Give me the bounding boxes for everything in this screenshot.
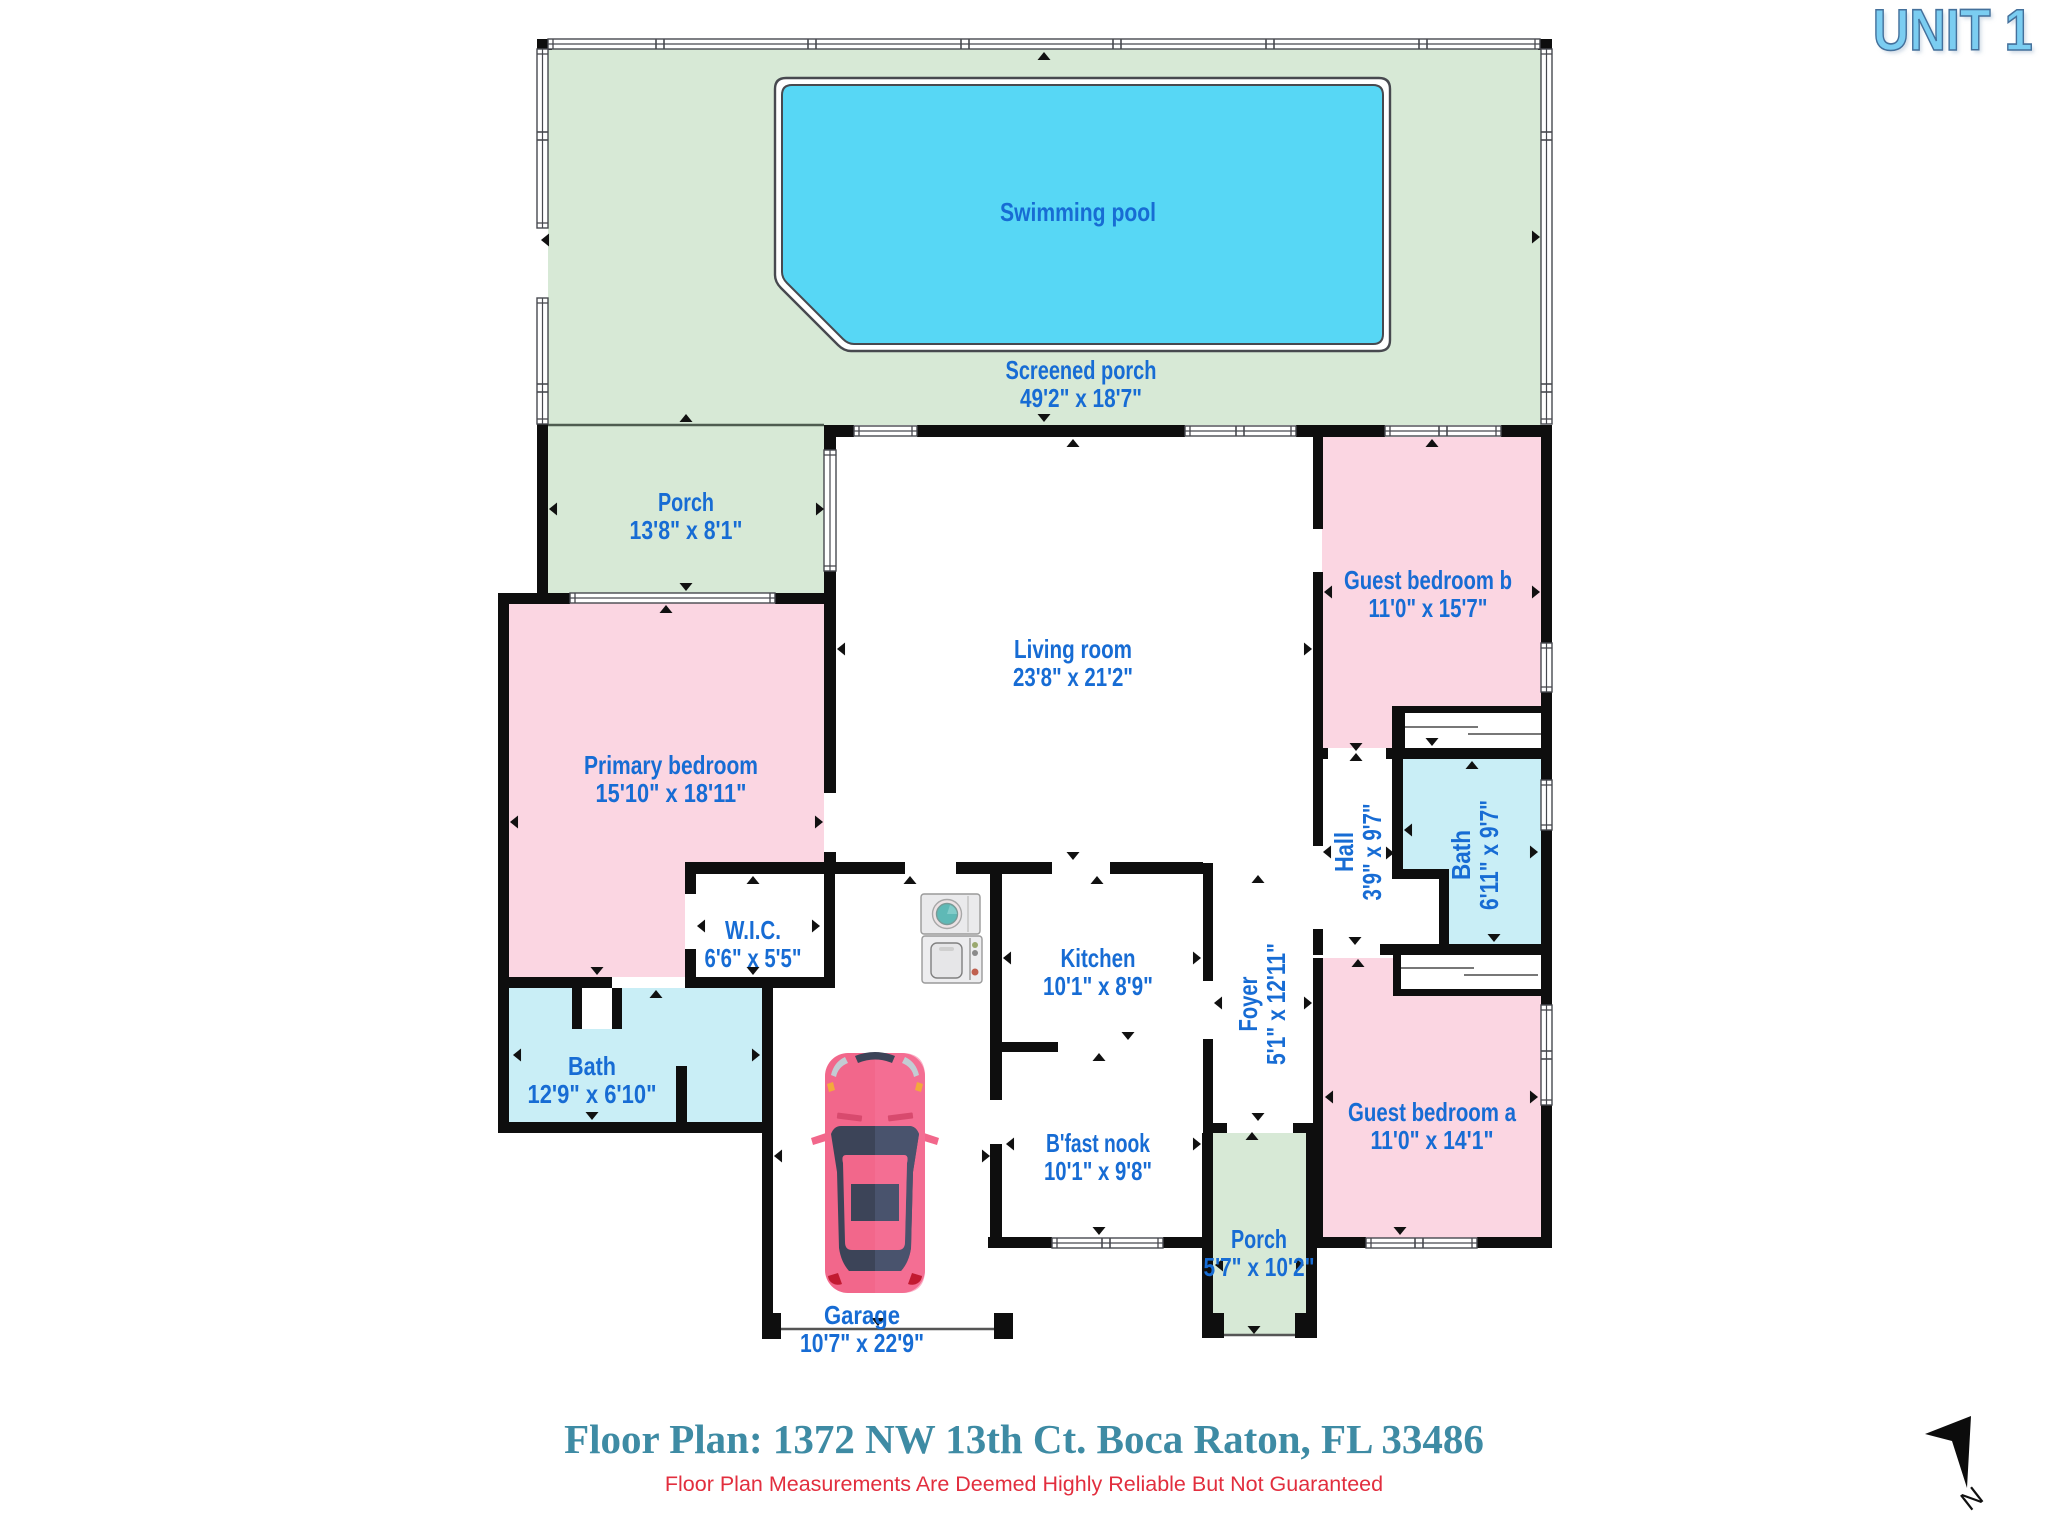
svg-text:15'10" x 18'11": 15'10" x 18'11"	[596, 778, 747, 808]
svg-text:10'7" x 22'9": 10'7" x 22'9"	[800, 1328, 924, 1358]
svg-text:10'1" x 8'9": 10'1" x 8'9"	[1043, 971, 1153, 1001]
svg-text:Porch: Porch	[658, 487, 714, 517]
svg-text:B'fast nook: B'fast nook	[1046, 1128, 1150, 1158]
svg-text:Porch: Porch	[1231, 1224, 1287, 1254]
svg-text:5'1" x 12'11": 5'1" x 12'11"	[1261, 943, 1291, 1065]
svg-text:5'7" x 10'2": 5'7" x 10'2"	[1204, 1252, 1315, 1282]
svg-text:Hall: Hall	[1329, 832, 1359, 872]
svg-text:Kitchen: Kitchen	[1061, 943, 1136, 973]
svg-text:Living room: Living room	[1014, 634, 1132, 664]
svg-text:Screened porch: Screened porch	[1006, 355, 1157, 385]
svg-text:23'8" x 21'2": 23'8" x 21'2"	[1013, 662, 1133, 692]
svg-text:Guest bedroom a: Guest bedroom a	[1348, 1097, 1516, 1127]
svg-text:49'2" x 18'7": 49'2" x 18'7"	[1020, 383, 1142, 413]
svg-text:12'9" x 6'10": 12'9" x 6'10"	[528, 1079, 657, 1109]
svg-text:6'6" x 5'5": 6'6" x 5'5"	[705, 943, 802, 973]
svg-text:Swimming pool: Swimming pool	[1000, 197, 1156, 227]
svg-text:6'11" x 9'7": 6'11" x 9'7"	[1474, 800, 1504, 910]
svg-text:10'1" x 9'8": 10'1" x 9'8"	[1044, 1156, 1152, 1186]
svg-text:Guest bedroom b: Guest bedroom b	[1344, 565, 1512, 595]
svg-text:13'8" x 8'1": 13'8" x 8'1"	[630, 515, 743, 545]
svg-text:Primary bedroom: Primary bedroom	[584, 750, 758, 780]
svg-text:Bath: Bath	[568, 1051, 616, 1081]
svg-text:W.I.C.: W.I.C.	[725, 915, 781, 945]
svg-text:Garage: Garage	[824, 1300, 900, 1330]
svg-text:11'0" x 14'1": 11'0" x 14'1"	[1371, 1125, 1494, 1155]
svg-text:3'9" x 9'7": 3'9" x 9'7"	[1357, 804, 1387, 901]
svg-text:11'0" x 15'7": 11'0" x 15'7"	[1369, 593, 1488, 623]
svg-text:Foyer: Foyer	[1233, 977, 1263, 1032]
svg-text:Bath: Bath	[1446, 830, 1476, 880]
